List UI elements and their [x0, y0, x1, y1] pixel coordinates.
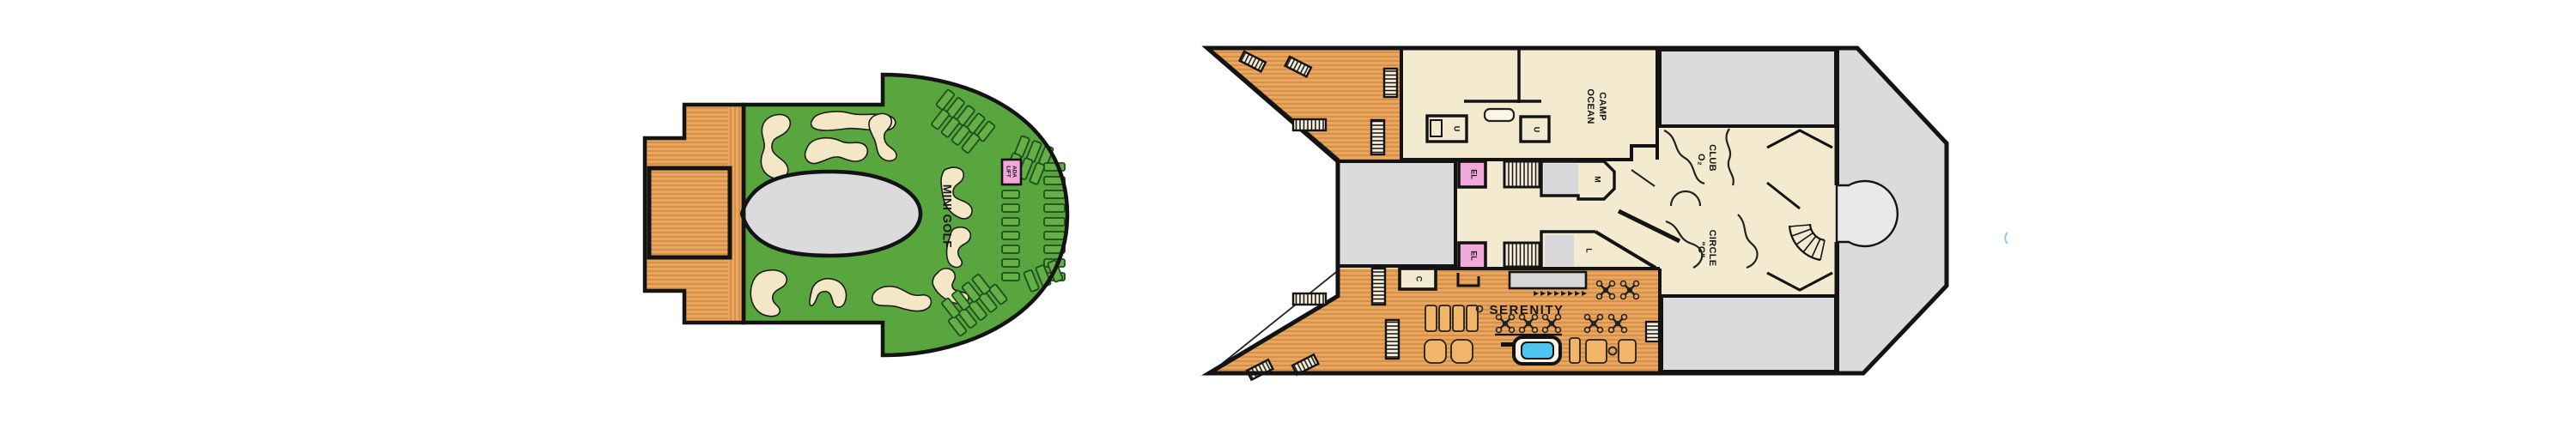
closet-room: C — [1400, 269, 1436, 289]
camp-ocean-label-line1: CAMP — [1597, 92, 1607, 121]
chairs-right-of-tub — [1570, 338, 1636, 363]
stairs-icon-landing-top — [1504, 161, 1540, 187]
club-o2-label-line1: CLUB — [1707, 144, 1717, 172]
circle-c-label-line1: CIRCLE — [1707, 230, 1717, 267]
elevator-label-2: EL — [1470, 251, 1479, 261]
bow-platform — [1837, 181, 1898, 246]
stairs-icon-hull-top — [1293, 119, 1326, 130]
deck-plan-canvas: ADA LIFT MINI GOLF — [0, 0, 2576, 429]
club-o2-label-line2: O₂ — [1696, 154, 1706, 166]
mini-golf-label: MINI GOLF — [940, 184, 953, 248]
central-block — [1338, 161, 1455, 266]
elevator-1: EL — [1459, 161, 1485, 187]
lounger-row — [1425, 305, 1483, 331]
mini-golf-deck: ADA LIFT MINI GOLF — [645, 75, 1067, 355]
circle-c-label-line2: "C" — [1696, 241, 1706, 257]
stairs-icon-wedge-bottom-a — [1372, 269, 1385, 305]
stairs-icon-serenity — [1646, 322, 1659, 341]
unisex-label-1: U — [1453, 126, 1461, 132]
activity-table — [1485, 109, 1514, 121]
elevator-label-1: EL — [1470, 169, 1479, 179]
mini-golf-wood-structure — [649, 168, 730, 257]
ada-lift-badge: ADA LIFT — [1002, 160, 1021, 184]
stairs-icon-wedge-top-b — [1371, 120, 1384, 154]
stairs-icon-hull-bottom — [1293, 293, 1326, 305]
stairs-icon-landing-bottom — [1504, 243, 1540, 267]
ladies-label: L — [1585, 248, 1594, 253]
closet-label: C — [1415, 276, 1424, 282]
ada-lift-label-line2: LIFT — [1005, 166, 1011, 178]
serenity-bar-counter — [1510, 272, 1586, 288]
open-deck-top — [1660, 50, 1836, 126]
stairs-icon-wedge-top-a — [1384, 69, 1397, 97]
main-deck: U U CAMP OCEAN EL EL M L — [1207, 48, 1947, 380]
unisex-label-2: U — [1533, 127, 1541, 133]
dome-skylight — [742, 172, 920, 256]
stray-blue-mark — [2005, 233, 2008, 244]
mens-label: M — [1594, 176, 1602, 183]
bench-column-left — [1002, 190, 1019, 281]
deck-plan-drawing: ADA LIFT MINI GOLF — [0, 0, 2576, 429]
open-deck-bottom — [1662, 296, 1836, 372]
elevator-2: EL — [1459, 243, 1485, 269]
stairs-icon-wedge-bottom-b — [1386, 320, 1399, 359]
ada-lift-label-line1: ADA — [1011, 166, 1017, 178]
camp-ocean-label-line2: OCEAN — [1585, 88, 1595, 124]
